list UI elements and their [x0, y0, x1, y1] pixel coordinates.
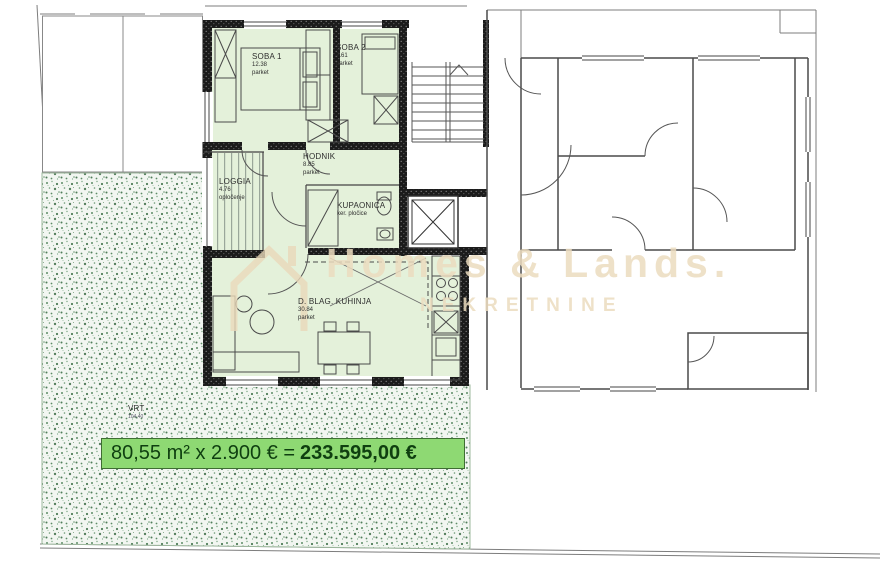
watermark-subtitle: NEKRETNINE: [420, 295, 624, 317]
right-apartment-windows: [534, 53, 814, 394]
price-total: 233.595,00 €: [300, 442, 417, 465]
price-formula: 80,55 m² x 2.900 € =: [111, 442, 295, 465]
floorplan-drawing: [0, 0, 882, 578]
room-label-kupaonica: KUPAONICA ker. pločice: [337, 201, 385, 219]
watermark-brand: Homes & Lands.: [326, 240, 731, 287]
room-label-hodnik: HODNIK 8.85 parket: [303, 152, 335, 178]
room-label-vrt: VRT 104,40: [128, 404, 144, 421]
right-apartment: [487, 10, 814, 394]
floorplan-page: Homes & Lands. NEKRETNINE SOBA 1 12.38 p…: [0, 0, 882, 578]
room-label-loggia: LOGGIA 4.76 opločenje: [219, 177, 251, 203]
terrace: [688, 333, 808, 389]
neighbor-terraces: [43, 16, 203, 172]
room-label-soba1: SOBA 1 12.38 parket: [252, 52, 282, 78]
room-label-living-dining-kitchen: D. BLAG. KUHINJA 30.84 parket: [298, 297, 371, 323]
room-label-soba2: SOBA 2 7.61 parket: [336, 43, 366, 69]
price-banner: 80,55 m² x 2.900 € = 233.595,00 €: [101, 438, 465, 469]
